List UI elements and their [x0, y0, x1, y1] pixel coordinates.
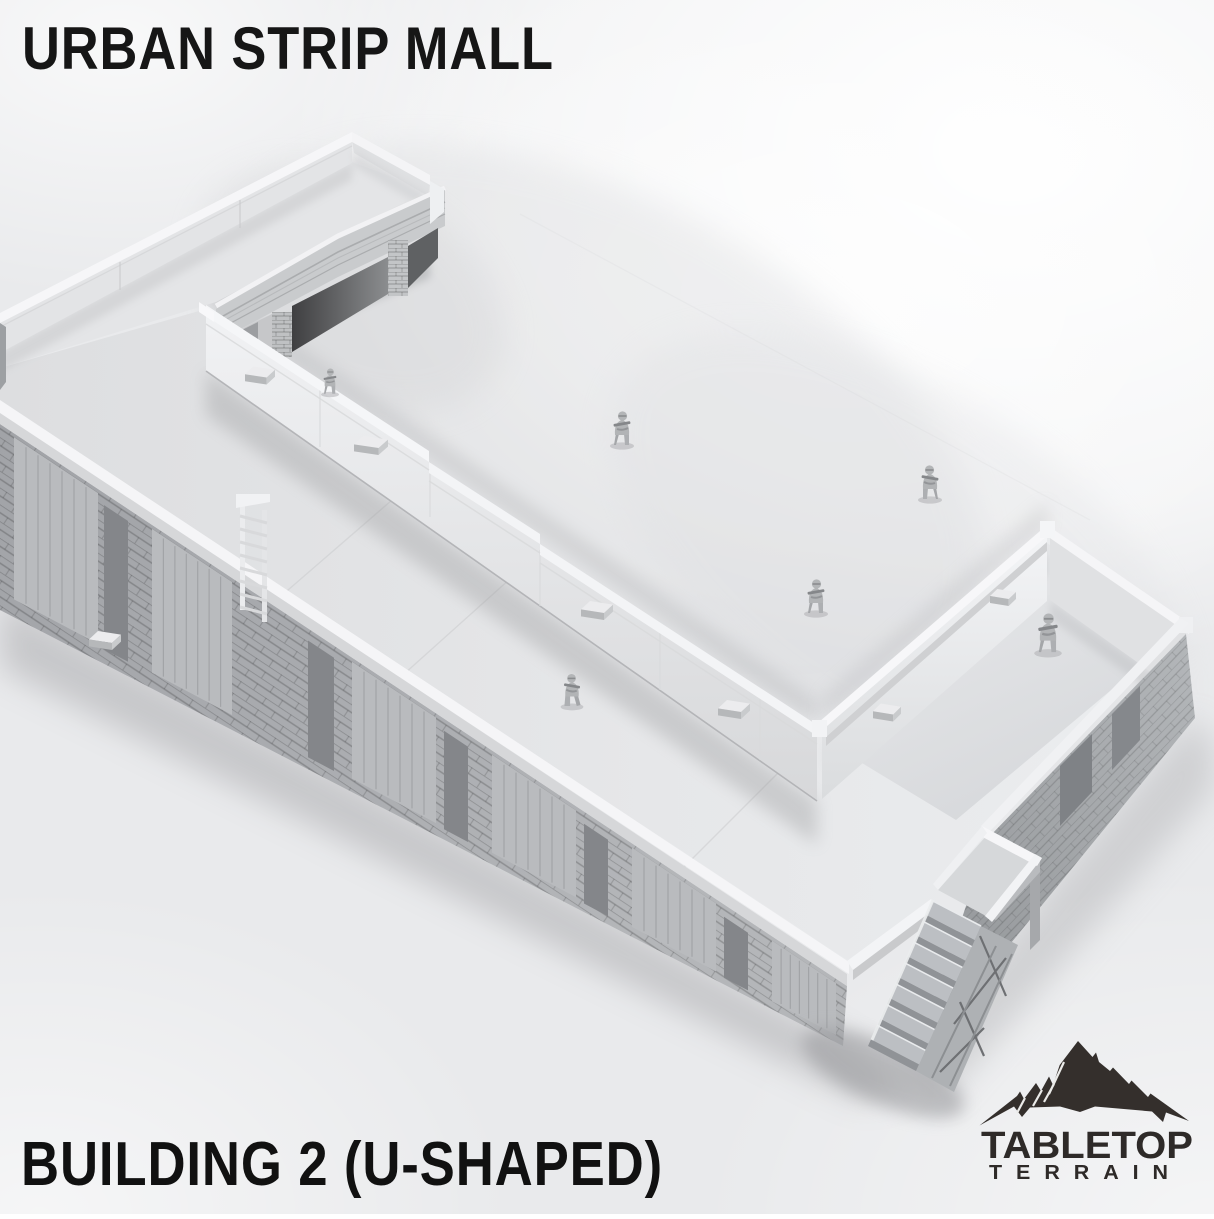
svg-text:TERRAIN: TERRAIN [989, 1162, 1182, 1184]
svg-text:URBAN STRIP MALL: URBAN STRIP MALL [22, 15, 554, 82]
svg-text:TABLETOP: TABLETOP [981, 1125, 1193, 1167]
svg-text:BUILDING 2 (U-SHAPED): BUILDING 2 (U-SHAPED) [21, 1130, 663, 1199]
